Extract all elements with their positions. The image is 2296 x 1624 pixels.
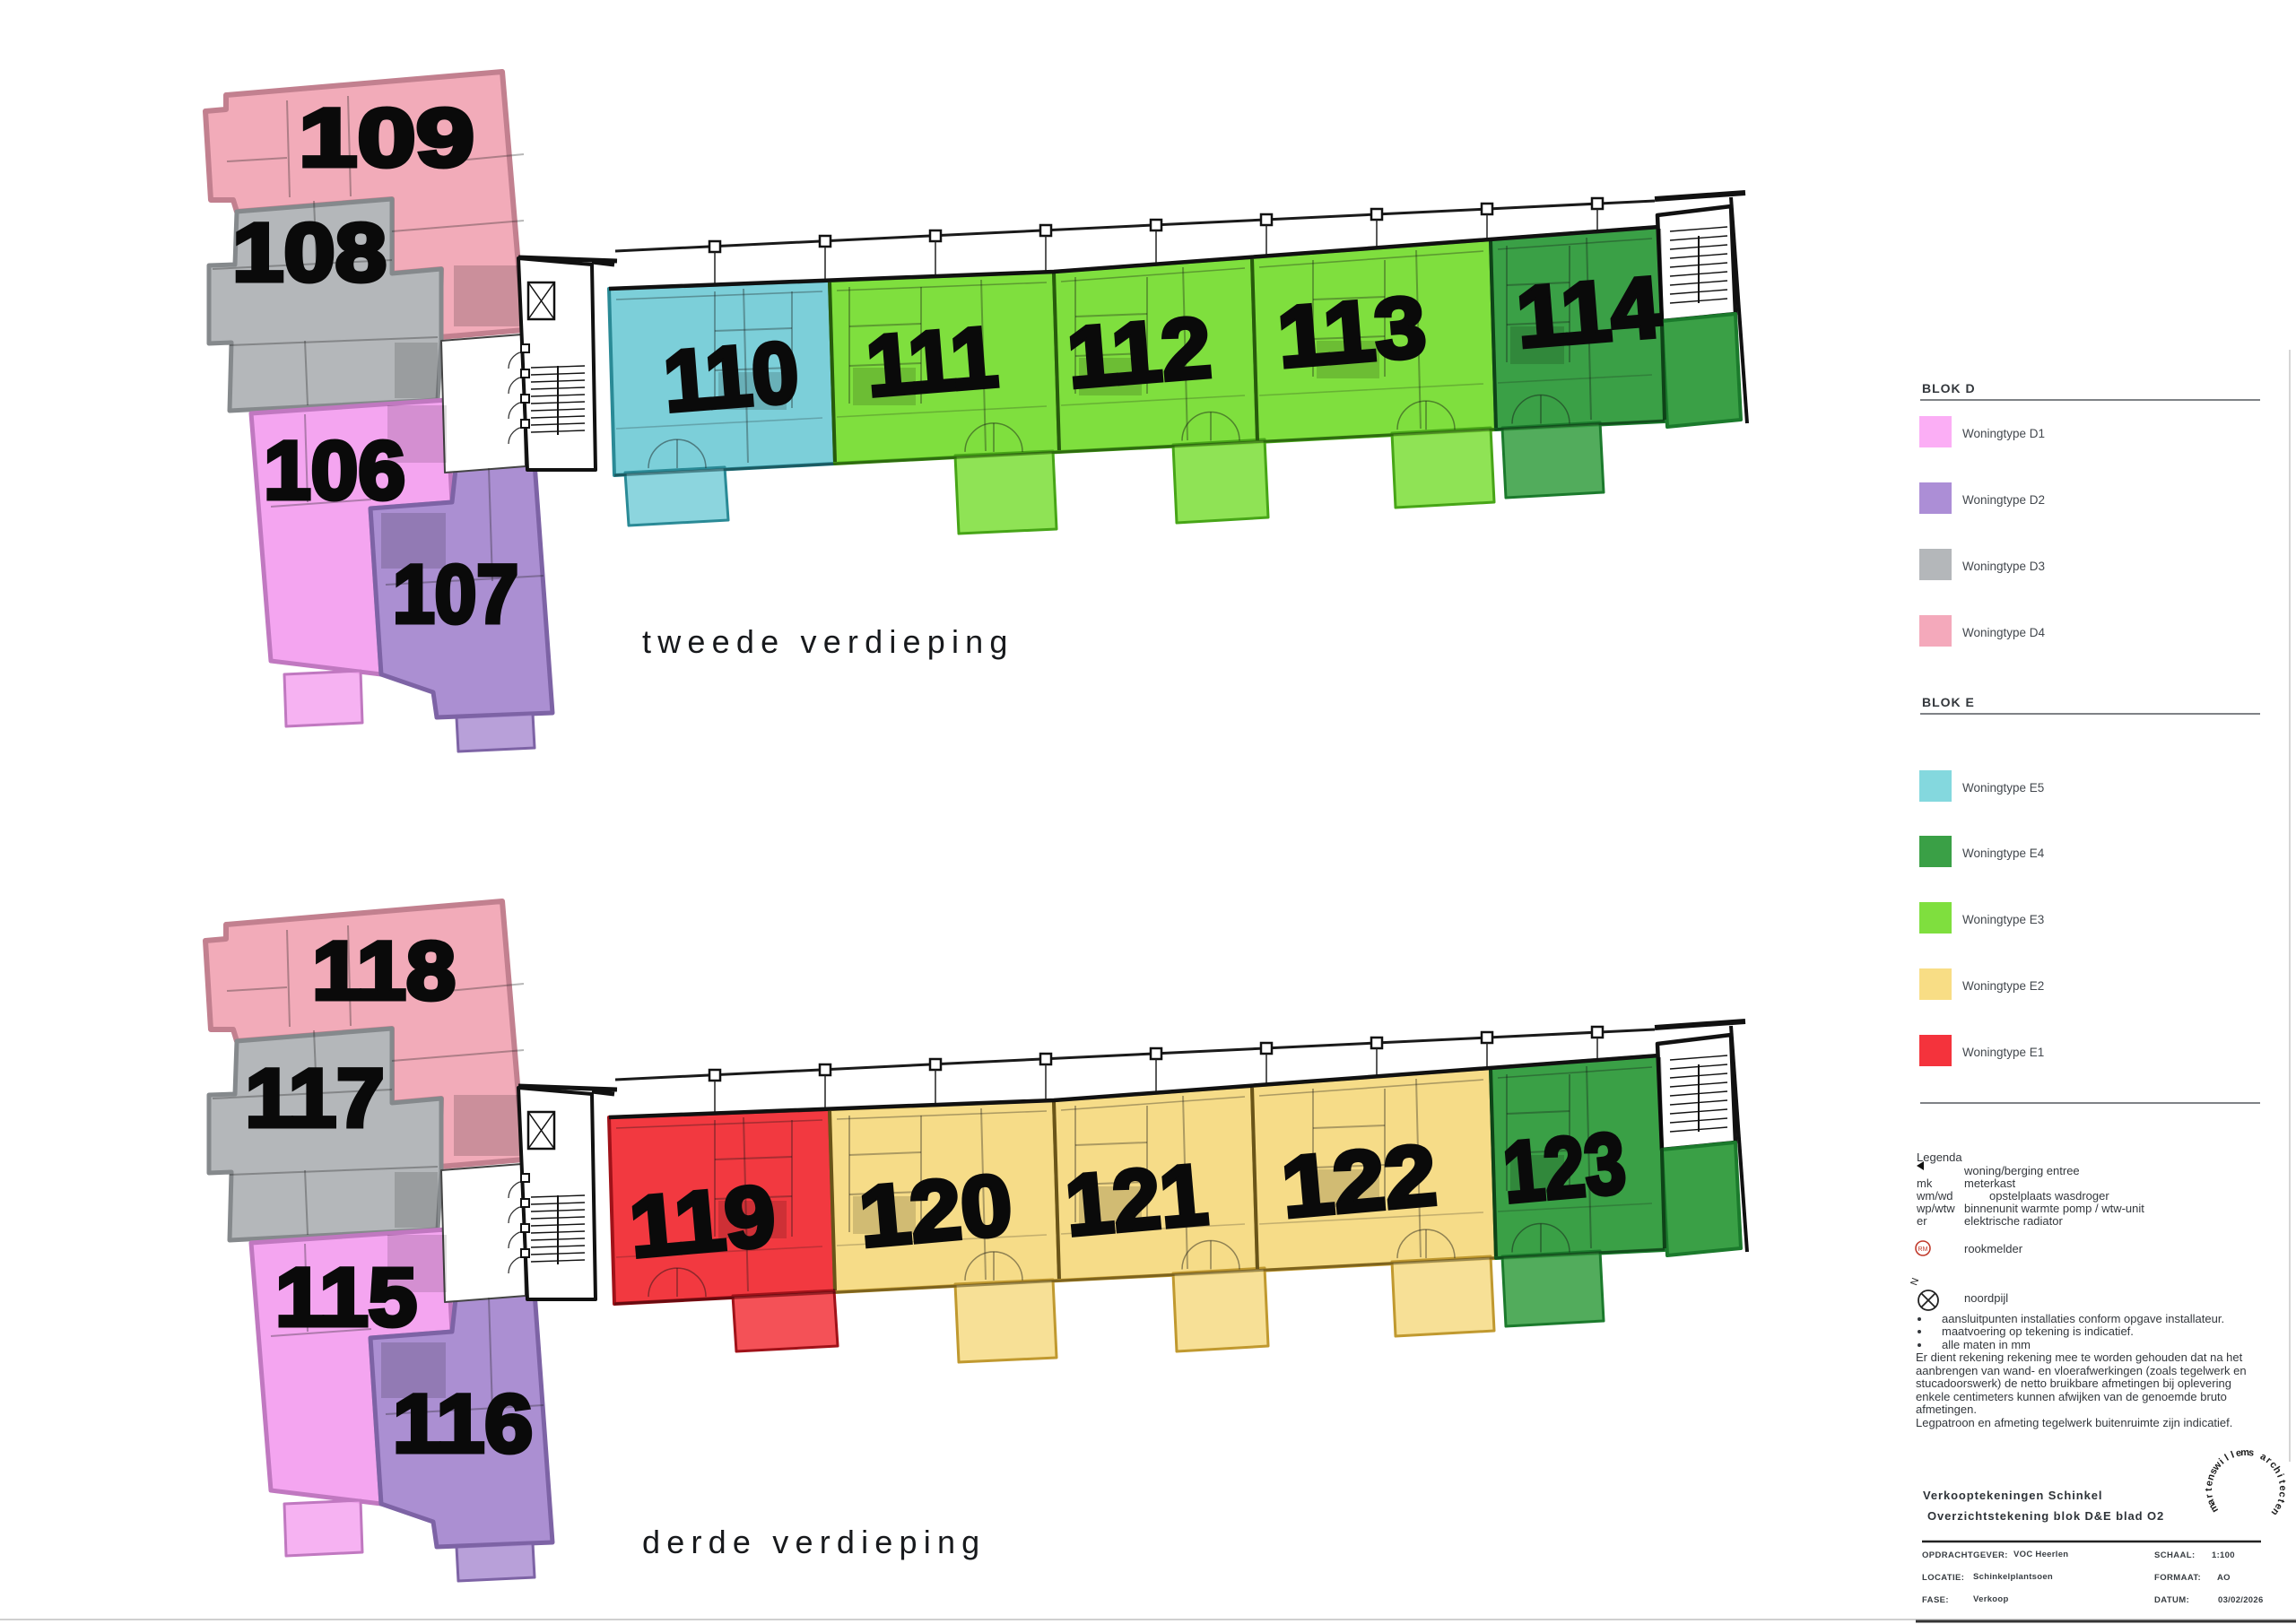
- svg-text:SCHAAL:: SCHAAL:: [2154, 1550, 2196, 1560]
- svg-text:maatvoering op tekening is ind: maatvoering op tekening is indicatief.: [1942, 1324, 2134, 1338]
- svg-text:122: 122: [1278, 1127, 1440, 1237]
- svg-text:116: 116: [393, 1378, 533, 1470]
- svg-text:enkele centimeters kunnen afwi: enkele centimeters kunnen afwijken van d…: [1916, 1390, 2227, 1403]
- svg-text:111: 111: [863, 308, 1001, 414]
- svg-text:121: 121: [1062, 1146, 1212, 1254]
- svg-text:1:100: 1:100: [2212, 1550, 2235, 1560]
- svg-text:tweede verdieping: tweede verdieping: [642, 623, 1014, 660]
- svg-text:113: 113: [1274, 279, 1430, 386]
- svg-text:DATUM:: DATUM:: [2154, 1595, 2189, 1605]
- svg-text:Woningtype E3: Woningtype E3: [1962, 913, 2044, 926]
- svg-text:e: e: [2277, 1485, 2288, 1491]
- svg-text:114: 114: [1513, 259, 1664, 366]
- svg-text:AO: AO: [2217, 1573, 2231, 1583]
- svg-text:Overzichtstekening blok D&E bl: Overzichtstekening blok D&E blad O2: [1927, 1509, 2164, 1523]
- svg-text:mk: mk: [1917, 1177, 1933, 1190]
- svg-text:LOCATIE:: LOCATIE:: [1922, 1573, 1964, 1583]
- svg-text:FORMAAT:: FORMAAT:: [2154, 1573, 2201, 1583]
- svg-text:Woningtype D2: Woningtype D2: [1962, 493, 2045, 507]
- svg-text:BLOK E: BLOK E: [1922, 695, 1975, 709]
- svg-text:alle maten in mm: alle maten in mm: [1942, 1338, 2031, 1351]
- svg-text:derde verdieping: derde verdieping: [642, 1524, 986, 1560]
- svg-text:Verkoop: Verkoop: [1973, 1594, 2009, 1604]
- svg-text:Woningtype D1: Woningtype D1: [1962, 427, 2045, 440]
- svg-text:VOC Heerlen: VOC Heerlen: [2013, 1550, 2068, 1559]
- svg-text:Woningtype D4: Woningtype D4: [1962, 626, 2046, 639]
- svg-text:afmetingen.: afmetingen.: [1916, 1403, 1977, 1416]
- svg-text:rookmelder: rookmelder: [1964, 1242, 2023, 1255]
- svg-text:118: 118: [312, 925, 456, 1017]
- svg-text:RM: RM: [1918, 1246, 1928, 1253]
- svg-text:FASE:: FASE:: [1922, 1595, 1949, 1605]
- svg-text:106: 106: [264, 425, 405, 517]
- svg-text:Legpatroon en afmeting tegelwe: Legpatroon en afmeting tegelwerk buitenr…: [1916, 1416, 2232, 1429]
- svg-text:Woningtype E1: Woningtype E1: [1962, 1046, 2044, 1059]
- svg-text:03/02/2026: 03/02/2026: [2218, 1595, 2264, 1605]
- svg-text:Woningtype D3: Woningtype D3: [1962, 560, 2045, 573]
- svg-text:BLOK D: BLOK D: [1922, 381, 1976, 395]
- svg-text:woning/berging entree: woning/berging entree: [1963, 1164, 2080, 1177]
- svg-text:er: er: [1917, 1214, 1927, 1228]
- svg-text:aansluitpunten installaties co: aansluitpunten installaties conform opga…: [1942, 1312, 2224, 1325]
- svg-text:107: 107: [393, 549, 518, 640]
- svg-text:noordpijl: noordpijl: [1964, 1291, 2008, 1305]
- svg-text:115: 115: [275, 1252, 417, 1343]
- svg-text:stucadoorswerk) de netto bruik: stucadoorswerk) de netto bruikbare afmet…: [1916, 1376, 2231, 1390]
- svg-text:Schinkelplantsoen: Schinkelplantsoen: [1973, 1572, 2053, 1582]
- svg-text:Verkooptekeningen Schinkel: Verkooptekeningen Schinkel: [1923, 1489, 2102, 1502]
- svg-text:Er dient rekening rekening mee: Er dient rekening rekening mee te worden…: [1916, 1350, 2243, 1364]
- svg-text:108: 108: [232, 207, 387, 299]
- svg-text:opstelplaats wasdroger: opstelplaats wasdroger: [1989, 1189, 2109, 1203]
- svg-text:Woningtype E2: Woningtype E2: [1962, 979, 2044, 993]
- svg-text:Woningtype E5: Woningtype E5: [1962, 781, 2044, 795]
- svg-text:Woningtype E4: Woningtype E4: [1962, 847, 2045, 860]
- svg-text:109: 109: [299, 92, 474, 184]
- svg-text:OPDRACHTGEVER:: OPDRACHTGEVER:: [1922, 1550, 2008, 1560]
- svg-text:120: 120: [856, 1157, 1016, 1265]
- svg-text:123: 123: [1500, 1115, 1630, 1220]
- svg-text:meterkast: meterkast: [1964, 1177, 2015, 1190]
- svg-text:117: 117: [246, 1053, 385, 1144]
- svg-text:aanbrengen van wand- en vloera: aanbrengen van wand- en vloerafwerkingen…: [1916, 1364, 2247, 1377]
- svg-text:elektrische radiator: elektrische radiator: [1964, 1214, 2063, 1228]
- svg-text:wm/wd: wm/wd: [1916, 1189, 1952, 1203]
- svg-text:110: 110: [660, 324, 802, 430]
- svg-text:binnenunit warmte pomp / wtw-u: binnenunit warmte pomp / wtw-unit: [1964, 1202, 2144, 1215]
- svg-text:112: 112: [1064, 300, 1214, 406]
- svg-text:wp/wtw: wp/wtw: [1916, 1202, 1955, 1215]
- svg-text:119: 119: [626, 1168, 779, 1276]
- svg-text:t: t: [2204, 1488, 2214, 1491]
